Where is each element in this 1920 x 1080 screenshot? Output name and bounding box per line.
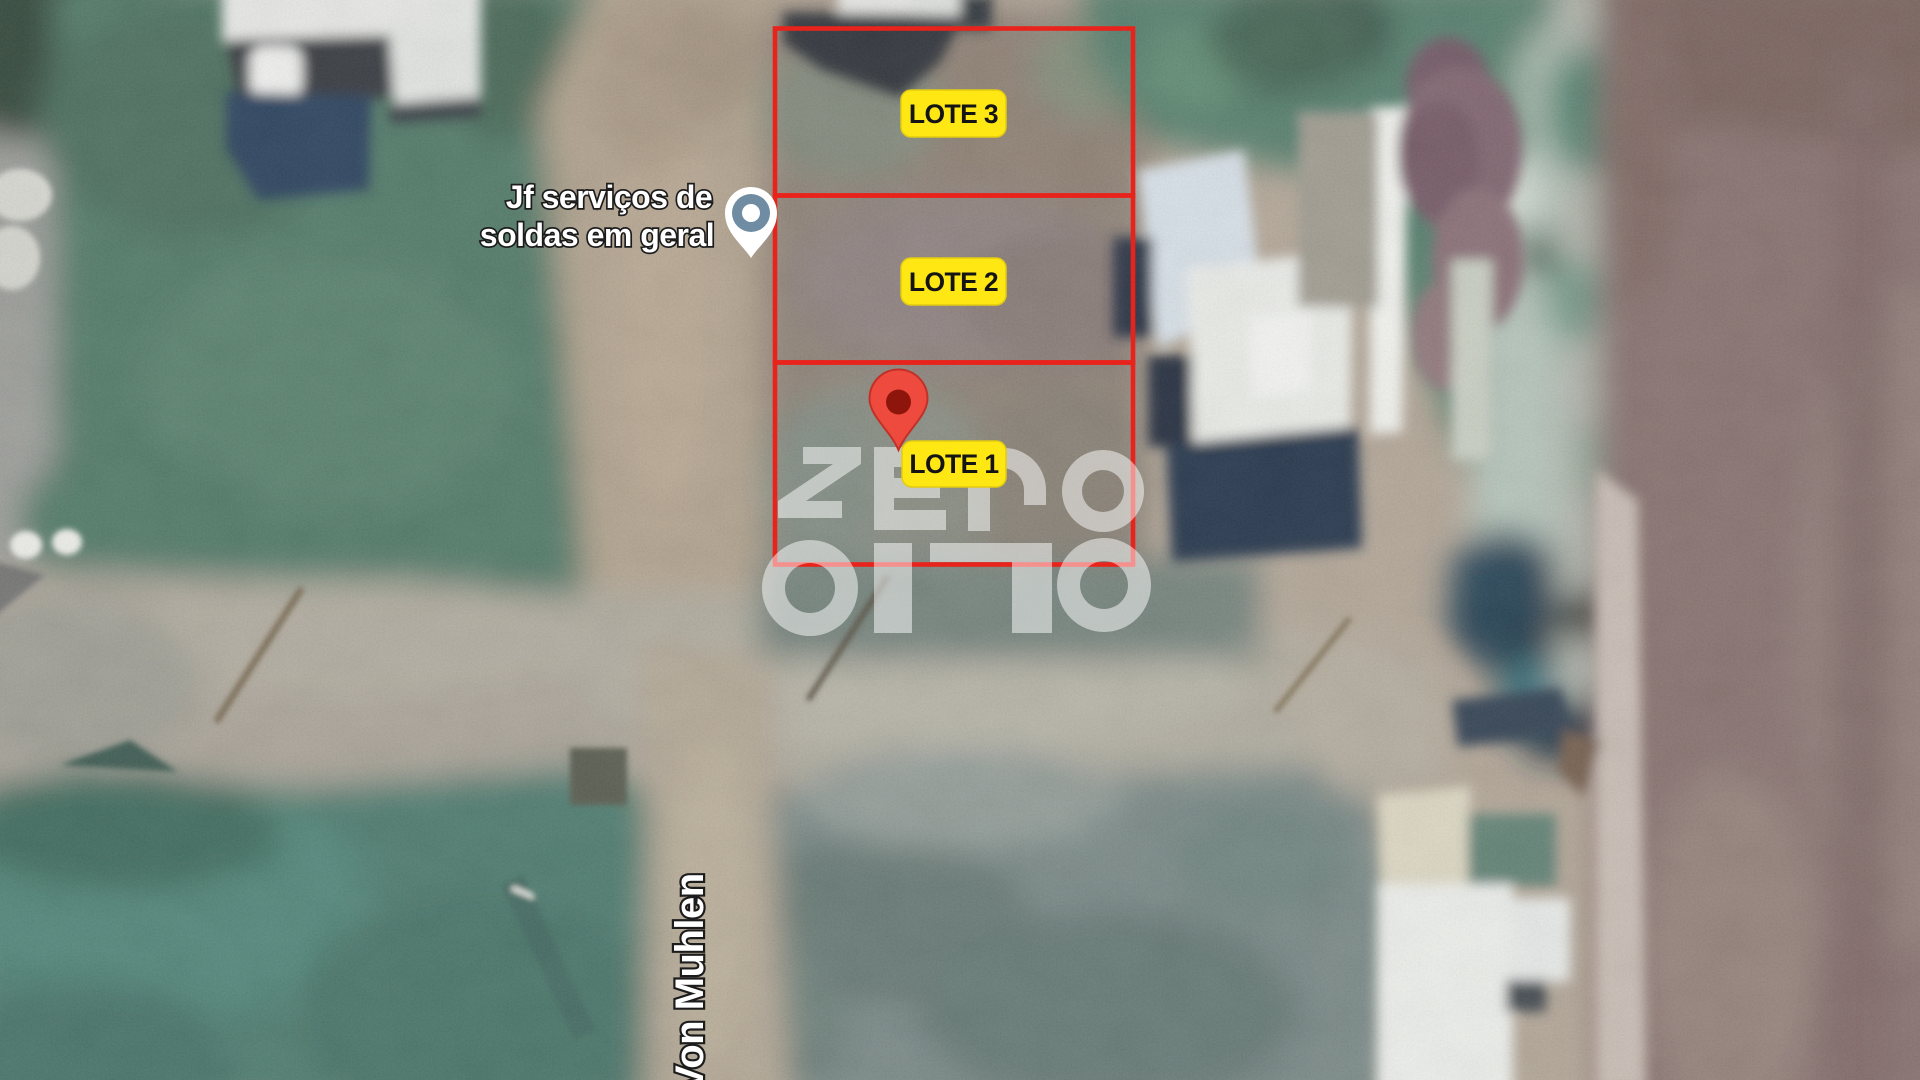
svg-text:LOTE 3: LOTE 3 [909, 99, 998, 129]
svg-text:LOTE 2: LOTE 2 [909, 267, 998, 297]
svg-text:soldas em geral: soldas em geral [480, 217, 714, 253]
svg-text:Jf serviços de: Jf serviços de [506, 179, 712, 215]
svg-text:Von Muhlen: Von Muhlen [668, 873, 712, 1080]
svg-text:LOTE 1: LOTE 1 [909, 449, 998, 479]
